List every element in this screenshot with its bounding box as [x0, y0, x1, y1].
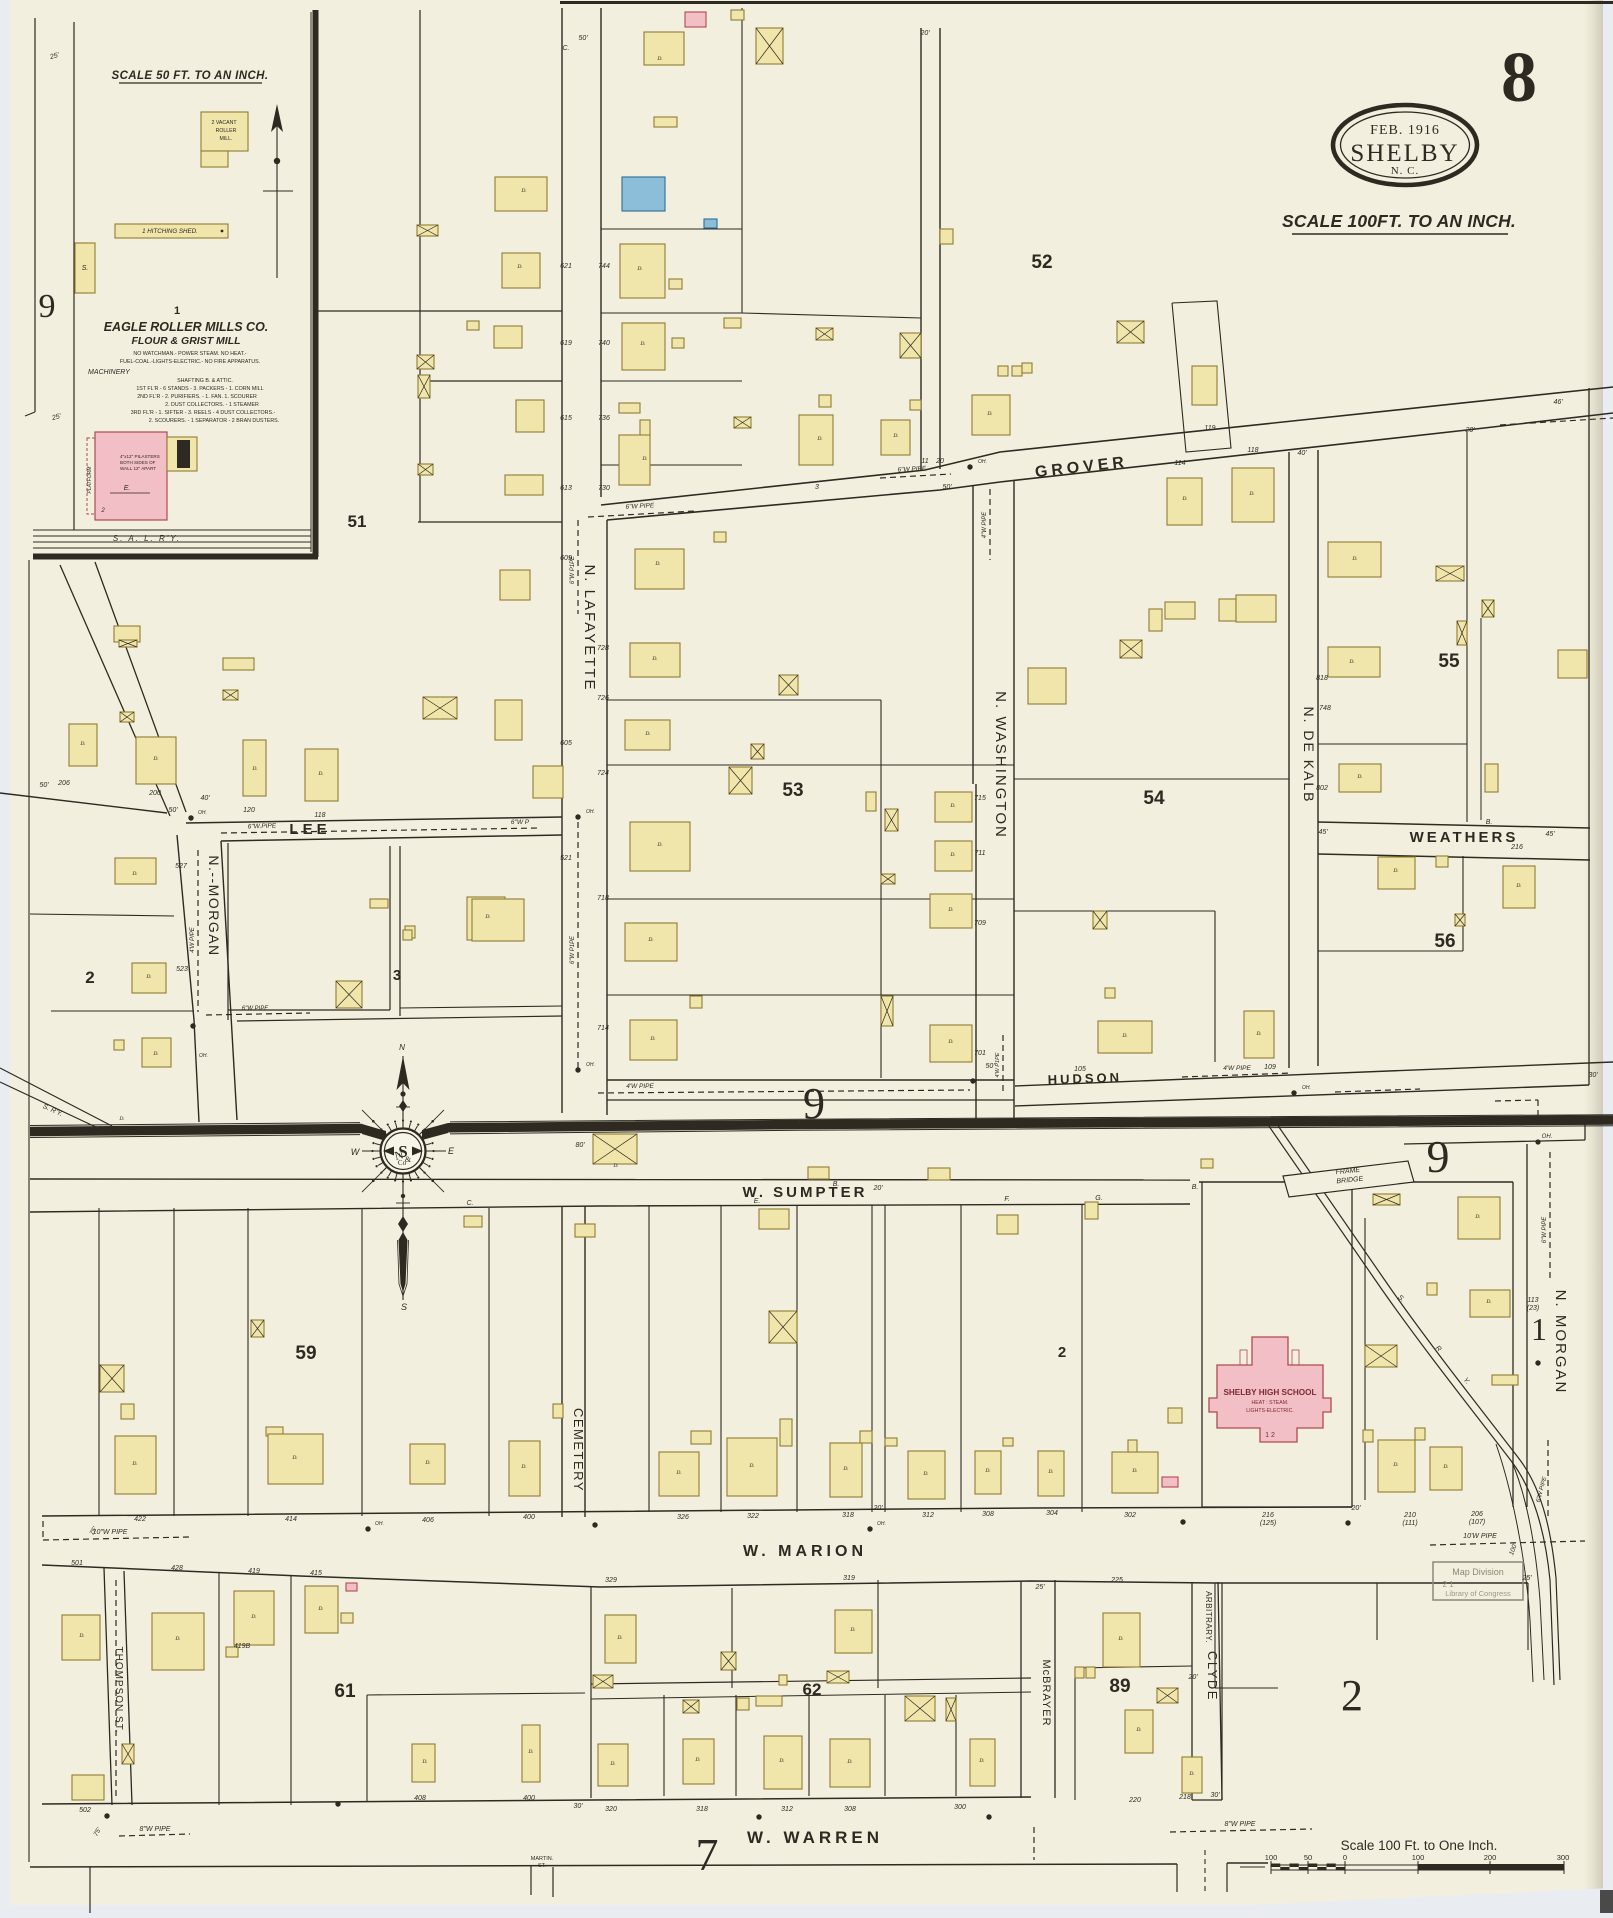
svg-text:30': 30'	[573, 1803, 583, 1810]
svg-text:B.: B.	[833, 1181, 840, 1188]
svg-text:1: 1	[174, 305, 180, 317]
svg-text:D.: D.	[1474, 1214, 1480, 1220]
svg-text:N. MORGAN: N. MORGAN	[1552, 1290, 1569, 1395]
svg-text:OH.: OH.	[1542, 1134, 1553, 1140]
svg-text:D.: D.	[1117, 1636, 1123, 1642]
svg-text:2. SCOURERS. - 1 SEPARATOR - 2: 2. SCOURERS. - 1 SEPARATOR - 2 BRAN DUST…	[149, 418, 279, 424]
svg-text:OH.: OH.	[586, 1062, 595, 1068]
svg-text:701: 701	[974, 1050, 986, 1057]
svg-text:D.: D.	[1135, 1727, 1141, 1733]
svg-text:2: 2	[100, 508, 105, 514]
svg-text:4"W PIPE: 4"W PIPE	[982, 511, 988, 538]
svg-text:D.: D.	[251, 766, 257, 772]
svg-text:D.: D.	[145, 974, 151, 980]
svg-text:210: 210	[1403, 1512, 1416, 1519]
svg-text:400: 400	[523, 1795, 535, 1802]
svg-text:NO WATCHMAN.- POWER STEAM. NO: NO WATCHMAN.- POWER STEAM. NO HEAT.-	[133, 351, 246, 357]
svg-text:30': 30'	[1210, 1792, 1220, 1799]
svg-text:HEAT : STEAM.: HEAT : STEAM.	[1252, 1400, 1289, 1406]
svg-text:FEB. 1916: FEB. 1916	[1370, 123, 1440, 138]
svg-text:WALL 12" APART: WALL 12" APART	[120, 466, 156, 471]
svg-text:ST.: ST.	[538, 1863, 546, 1869]
svg-text:THOMPSON ST.: THOMPSON ST.	[113, 1646, 124, 1733]
svg-text:D.: D.	[647, 937, 653, 943]
svg-text:8"W PIPE: 8"W PIPE	[1225, 1821, 1256, 1828]
svg-text:D.: D.	[1348, 659, 1354, 665]
svg-text:D.: D.	[978, 1758, 984, 1764]
svg-text:OH.: OH.	[375, 1521, 384, 1527]
svg-text:615: 615	[560, 415, 572, 422]
svg-text:818: 818	[1316, 675, 1328, 682]
svg-text:W. MARION: W. MARION	[743, 1543, 867, 1560]
svg-text:Library of Congress: Library of Congress	[1445, 1589, 1511, 1598]
svg-text:326: 326	[677, 1514, 689, 1521]
svg-text:6"W P1PE: 6"W P1PE	[570, 935, 576, 964]
svg-text:CLYDE: CLYDE	[1205, 1651, 1220, 1701]
svg-text:D.: D.	[520, 1464, 526, 1470]
svg-text:9: 9	[1427, 1131, 1450, 1182]
svg-text:FUEL-COAL.-LIGHTS-ELECTRIC.- N: FUEL-COAL.-LIGHTS-ELECTRIC.- NO FIRE APP…	[120, 359, 260, 365]
svg-text:D.: D.	[949, 852, 955, 858]
svg-text:1: 1	[1531, 1311, 1547, 1347]
svg-text:D.: D.	[651, 656, 657, 662]
svg-text:55: 55	[1438, 651, 1460, 672]
svg-text:D.: D.	[317, 771, 323, 777]
svg-text:748: 748	[1319, 705, 1331, 712]
svg-text:20': 20'	[872, 1185, 883, 1192]
svg-text:D.: D.	[654, 561, 660, 567]
svg-text:318: 318	[696, 1806, 708, 1813]
svg-text:2. DUST COLLECTORS. - 1 STEAME: 2. DUST COLLECTORS. - 1 STEAMER	[165, 402, 259, 408]
svg-text:D.: D.	[317, 1606, 323, 1612]
svg-text:621: 621	[560, 263, 572, 270]
svg-text:(111): (111)	[1402, 1520, 1417, 1527]
svg-text:1ST FL'R - 6 STANDS - 3. PACKE: 1ST FL'R - 6 STANDS - 3. PACKERS - 1. CO…	[136, 386, 263, 392]
svg-text:D.: D.	[748, 1463, 754, 1469]
svg-text:2: 2	[1341, 1671, 1363, 1720]
svg-text:D.: D.	[649, 1036, 655, 1042]
svg-text:D.: D.	[947, 907, 953, 913]
svg-text:D.: D.	[949, 803, 955, 809]
svg-text:0: 0	[1343, 1853, 1347, 1862]
svg-text:D.: D.	[846, 1759, 852, 1765]
svg-text:D.: D.	[644, 731, 650, 737]
svg-text:3: 3	[815, 484, 819, 491]
svg-text:D.: D.	[612, 1163, 618, 1169]
svg-text:D.: D.	[849, 1627, 855, 1633]
svg-text:Co: Co	[398, 1159, 407, 1167]
svg-text:206: 206	[57, 780, 70, 787]
svg-text:D.: D.	[1131, 1468, 1137, 1474]
svg-text:225: 225	[1110, 1577, 1123, 1584]
svg-text:109: 109	[1264, 1064, 1276, 1071]
svg-text:B.: B.	[1192, 1184, 1199, 1191]
svg-text:D.: D.	[1121, 1033, 1127, 1039]
svg-text:45': 45'	[1318, 829, 1328, 836]
svg-text:D.: D.	[922, 1471, 928, 1477]
svg-text:724: 724	[597, 770, 609, 777]
svg-text:D.: D.	[656, 56, 662, 62]
svg-text:SCALE 50 FT. TO AN INCH.: SCALE 50 FT. TO AN INCH.	[112, 70, 269, 82]
svg-text:D.: D.	[675, 1470, 681, 1476]
svg-text:E: E	[448, 1146, 455, 1156]
svg-text:LIGHTS-ELECTRIC.: LIGHTS-ELECTRIC.	[1246, 1408, 1294, 1414]
svg-text:D.: D.	[527, 1749, 533, 1755]
svg-text:C.: C.	[563, 45, 570, 52]
svg-text:40': 40'	[1297, 450, 1307, 457]
svg-text:320: 320	[605, 1806, 617, 1813]
svg-text:SCALE 100FT. TO AN INCH.: SCALE 100FT. TO AN INCH.	[1282, 211, 1516, 231]
svg-text:D.: D.	[152, 756, 158, 762]
svg-text:OH.: OH.	[586, 809, 595, 815]
svg-text:521: 521	[560, 855, 572, 862]
svg-text:E.: E.	[754, 1198, 761, 1205]
svg-text:8"W PIPE: 8"W PIPE	[140, 1826, 171, 1833]
svg-text:SHELBY HIGH SCHOOL: SHELBY HIGH SCHOOL	[1223, 1388, 1316, 1397]
svg-text:501: 501	[71, 1560, 83, 1567]
svg-text:D.: D.	[79, 741, 85, 747]
svg-text:EAGLE ROLLER MILLS CO.: EAGLE ROLLER MILLS CO.	[104, 320, 269, 334]
svg-text:728: 728	[597, 645, 609, 652]
svg-text:527: 527	[175, 863, 188, 870]
svg-text:216: 216	[1510, 844, 1523, 851]
svg-text:(125): (125)	[1260, 1520, 1276, 1527]
svg-text:414: 414	[285, 1516, 297, 1523]
svg-text:D.: D.	[947, 1039, 953, 1045]
svg-text:ARBITRARY.: ARBITRARY.	[1204, 1591, 1213, 1643]
svg-text:218: 218	[1178, 1794, 1191, 1801]
svg-text:2ND FL'R - 2. PURIFIERS. - 1.: 2ND FL'R - 2. PURIFIERS. - 1. FAN. 1. SC…	[137, 394, 257, 400]
svg-text:6"W PIPE: 6"W PIPE	[1542, 1216, 1548, 1243]
svg-text:25': 25'	[1521, 1575, 1532, 1582]
svg-text:56: 56	[1434, 931, 1455, 952]
svg-text:ROLLER: ROLLER	[216, 128, 237, 134]
svg-text:119: 119	[1204, 425, 1215, 432]
svg-text:406: 406	[422, 1517, 434, 1524]
svg-text:50': 50'	[942, 484, 952, 491]
svg-text:D.: D.	[421, 1759, 427, 1765]
svg-text:LEE: LEE	[289, 821, 330, 838]
svg-text:(107): (107)	[1469, 1519, 1485, 1526]
svg-text:50': 50'	[39, 782, 49, 789]
svg-text:OH.: OH.	[978, 459, 987, 465]
svg-text:20': 20'	[872, 1505, 883, 1512]
svg-text:McBRAYER: McBRAYER	[1040, 1659, 1052, 1726]
svg-text:N. DE KALB: N. DE KALB	[1301, 706, 1317, 803]
svg-text:D.: D.	[842, 1466, 848, 1472]
svg-text:D.: D.	[174, 1636, 180, 1642]
svg-text:D.: D.	[609, 1761, 615, 1767]
svg-text:50': 50'	[578, 35, 588, 42]
svg-text:744: 744	[598, 263, 610, 270]
svg-text:62: 62	[803, 1680, 822, 1699]
svg-text:726: 726	[597, 695, 609, 702]
svg-text:216: 216	[1261, 1512, 1274, 1519]
svg-text:312: 312	[781, 1806, 793, 1813]
svg-text:4"x12" PILASTERS: 4"x12" PILASTERS	[120, 454, 160, 459]
svg-text:206: 206	[1470, 1511, 1483, 1518]
svg-text:419B: 419B	[234, 1643, 251, 1650]
svg-text:20': 20'	[919, 30, 930, 37]
svg-text:S.: S.	[82, 265, 89, 272]
svg-text:319: 319	[843, 1575, 855, 1582]
svg-text:B.: B.	[1486, 819, 1493, 826]
svg-text:W. WARREN: W. WARREN	[747, 1828, 883, 1847]
svg-text:300: 300	[1557, 1853, 1570, 1862]
svg-text:CEMETERY: CEMETERY	[571, 1408, 586, 1492]
svg-text:11: 11	[921, 458, 928, 465]
svg-text:50': 50'	[168, 807, 178, 814]
svg-text:4'W P1PE: 4'W P1PE	[995, 1052, 1001, 1077]
svg-text:59: 59	[295, 1343, 316, 1364]
svg-text:312: 312	[922, 1512, 934, 1519]
svg-text:100: 100	[1265, 1853, 1278, 1862]
svg-text:1 HITCHING SHED.: 1 HITCHING SHED.	[142, 228, 198, 235]
svg-text:25': 25'	[1034, 1584, 1045, 1591]
svg-text:322: 322	[747, 1513, 759, 1520]
svg-text:D.: D.	[424, 1460, 430, 1466]
svg-text:51: 51	[348, 512, 367, 531]
svg-text:D.: D.	[1442, 1464, 1448, 1470]
svg-text:80': 80'	[575, 1142, 585, 1149]
svg-text:61: 61	[334, 1681, 356, 1702]
svg-text:N.--MORGAN: N.--MORGAN	[206, 855, 222, 956]
svg-text:W. SUMPTER: W. SUMPTER	[742, 1184, 867, 1201]
svg-text:2 VACANT: 2 VACANT	[212, 120, 238, 126]
svg-text:428: 428	[171, 1565, 183, 1572]
svg-text:20: 20	[935, 458, 944, 465]
svg-text:736: 736	[598, 415, 610, 422]
svg-text:PLATFORM: PLATFORM	[87, 466, 93, 494]
svg-text:114: 114	[1174, 460, 1185, 467]
svg-text:711: 711	[974, 850, 985, 857]
svg-text:G.: G.	[1095, 1195, 1102, 1202]
svg-text:BOTH SIDES OF: BOTH SIDES OF	[120, 460, 156, 465]
svg-text:D.: D.	[986, 411, 992, 417]
svg-text:304: 304	[1046, 1510, 1058, 1517]
svg-text:52: 52	[1031, 252, 1052, 273]
svg-text:523: 523	[176, 966, 188, 973]
svg-text:2: 2	[85, 968, 94, 987]
svg-text:308: 308	[982, 1511, 994, 1518]
svg-text:20': 20'	[1464, 427, 1475, 434]
svg-text:F.: F.	[1004, 1196, 1009, 1203]
svg-text:OH.: OH.	[1302, 1085, 1311, 1091]
svg-text:20': 20'	[1187, 1674, 1198, 1681]
svg-text:220: 220	[1128, 1797, 1141, 1804]
svg-text:609: 609	[560, 555, 572, 562]
svg-text:D.: D.	[1392, 1462, 1398, 1468]
svg-text:46': 46'	[1553, 399, 1563, 406]
svg-text:105: 105	[1074, 1066, 1086, 1073]
svg-text:D.: D.	[984, 1468, 990, 1474]
svg-text:4'W PIPE: 4'W PIPE	[626, 1083, 654, 1090]
svg-text:20': 20'	[1350, 1505, 1361, 1512]
svg-text:300: 300	[954, 1804, 966, 1811]
svg-text:7: 7	[696, 1829, 719, 1880]
svg-text:D.: D.	[131, 871, 137, 877]
svg-text:WEATHERS: WEATHERS	[1410, 829, 1519, 846]
svg-text:10'W PIPE: 10'W PIPE	[1463, 1533, 1497, 1540]
svg-text:MARTIN.: MARTIN.	[531, 1856, 554, 1862]
svg-text:FLOUR & GRIST MILL: FLOUR & GRIST MILL	[131, 335, 240, 347]
svg-text:OH.: OH.	[199, 1053, 208, 1059]
svg-text:619: 619	[560, 340, 572, 347]
svg-text:Map Division: Map Division	[1452, 1567, 1504, 1577]
svg-text:118: 118	[1247, 447, 1258, 454]
svg-text:718: 718	[597, 895, 609, 902]
svg-text:N. LAFAYETTE: N. LAFAYETTE	[581, 564, 598, 691]
svg-text:D.: D.	[778, 1758, 784, 1764]
svg-text:D.: D.	[636, 266, 642, 272]
svg-text:S. A. L. R'Y.: S. A. L. R'Y.	[113, 534, 181, 543]
svg-text:30': 30'	[1588, 1072, 1598, 1079]
svg-text:D.: D.	[1047, 1469, 1053, 1475]
svg-text:45': 45'	[1545, 831, 1555, 838]
svg-text:S: S	[401, 1302, 407, 1312]
svg-text:C.: C.	[467, 1200, 474, 1207]
svg-text:613: 613	[560, 485, 572, 492]
svg-text:4'W PIPE: 4'W PIPE	[1223, 1065, 1251, 1072]
svg-text:D.: D.	[520, 188, 526, 194]
svg-text:8: 8	[1501, 37, 1537, 117]
svg-text:D.: D.	[1181, 496, 1187, 502]
svg-text:120: 120	[243, 807, 255, 814]
svg-text:40': 40'	[200, 795, 210, 802]
svg-text:D.: D.	[516, 264, 522, 270]
svg-text:113: 113	[1527, 1297, 1538, 1304]
svg-text:118: 118	[314, 812, 325, 819]
svg-text:MACHINERY: MACHINERY	[88, 369, 131, 376]
svg-text:D.: D.	[816, 436, 822, 442]
svg-text:302: 302	[1124, 1512, 1136, 1519]
svg-text:OH.: OH.	[877, 1521, 886, 1527]
svg-text:D.: D.	[1248, 491, 1254, 497]
svg-text:329: 329	[605, 1577, 617, 1584]
svg-text:D.: D.	[78, 1633, 84, 1639]
svg-text:50: 50	[1304, 1853, 1312, 1862]
svg-text:318: 318	[842, 1512, 854, 1519]
svg-text:408: 408	[414, 1795, 426, 1802]
svg-text:D.: D.	[694, 1757, 700, 1763]
svg-text:1 2: 1 2	[1265, 1432, 1275, 1439]
svg-text:D.: D.	[1485, 1299, 1491, 1305]
svg-text:N. C.: N. C.	[1391, 165, 1420, 177]
svg-text:730: 730	[598, 485, 610, 492]
svg-text:200: 200	[148, 790, 161, 797]
svg-text:D.: D.	[484, 914, 490, 920]
svg-text:100: 100	[1412, 1853, 1425, 1862]
svg-text:715: 715	[974, 795, 986, 802]
svg-text:D.: D.	[1515, 883, 1521, 889]
svg-text:419: 419	[248, 1568, 260, 1575]
svg-text:400: 400	[523, 1514, 535, 1521]
svg-text:2: 2	[1058, 1344, 1066, 1361]
svg-text:3: 3	[393, 967, 401, 984]
svg-text:89: 89	[1109, 1676, 1130, 1697]
svg-text:9: 9	[39, 288, 56, 325]
svg-text:50': 50'	[985, 1063, 995, 1070]
svg-text:6"W.PIPE: 6"W.PIPE	[248, 822, 277, 830]
svg-text:D.: D.	[892, 433, 898, 439]
svg-text:MILL.: MILL.	[220, 136, 233, 142]
svg-text:422: 422	[134, 1516, 146, 1523]
svg-text:502: 502	[79, 1807, 91, 1814]
svg-text:2 1: 2 1	[1442, 1580, 1454, 1589]
svg-text:D.: D.	[291, 1455, 297, 1461]
svg-text:802: 802	[1316, 785, 1328, 792]
svg-text:709: 709	[974, 920, 986, 927]
svg-text:3RD FL'R - 1. SIFTER - 3. REEL: 3RD FL'R - 1. SIFTER - 3. REELS - 4 DUST…	[131, 410, 276, 416]
svg-text:D.: D.	[639, 341, 645, 347]
svg-text:E.: E.	[124, 485, 131, 492]
svg-text:D.: D.	[1188, 1771, 1194, 1777]
svg-text:D.: D.	[1392, 868, 1398, 874]
svg-text:D.: D.	[250, 1614, 256, 1620]
svg-text:714: 714	[597, 1025, 609, 1032]
svg-text:6"W PIPE: 6"W PIPE	[242, 1006, 269, 1012]
svg-text:OH.: OH.	[198, 810, 207, 816]
svg-text:4'W PIPE: 4'W PIPE	[190, 926, 196, 952]
svg-text:N. WASHINGTON: N. WASHINGTON	[992, 691, 1009, 839]
svg-text:9: 9	[803, 1079, 825, 1128]
svg-text:D.: D.	[641, 456, 647, 462]
svg-text:(23): (23)	[1527, 1305, 1539, 1312]
svg-text:N: N	[399, 1043, 405, 1052]
svg-text:SHELBY: SHELBY	[1350, 140, 1459, 167]
svg-text:200: 200	[1484, 1853, 1497, 1862]
svg-text:D.: D.	[118, 1116, 124, 1122]
svg-text:Scale 100 Ft. to One Inch.: Scale 100 Ft. to One Inch.	[1341, 1838, 1498, 1853]
svg-text:53: 53	[782, 780, 803, 801]
svg-text:D.: D.	[1351, 556, 1357, 562]
svg-text:6"W P: 6"W P	[511, 819, 530, 826]
svg-text:54: 54	[1143, 788, 1165, 809]
svg-text:D.: D.	[131, 1461, 137, 1467]
svg-text:D.: D.	[1255, 1031, 1261, 1037]
svg-text:D.: D.	[152, 1051, 158, 1057]
svg-text:308: 308	[844, 1806, 856, 1813]
svg-text:415: 415	[310, 1570, 322, 1577]
svg-text:D.: D.	[1356, 774, 1362, 780]
svg-text:SHAFTING B. & ATTIC.: SHAFTING B. & ATTIC.	[177, 378, 233, 384]
svg-text:740: 740	[598, 340, 610, 347]
svg-text:D.: D.	[616, 1635, 622, 1641]
svg-text:D.: D.	[656, 842, 662, 848]
svg-text:605: 605	[560, 740, 572, 747]
